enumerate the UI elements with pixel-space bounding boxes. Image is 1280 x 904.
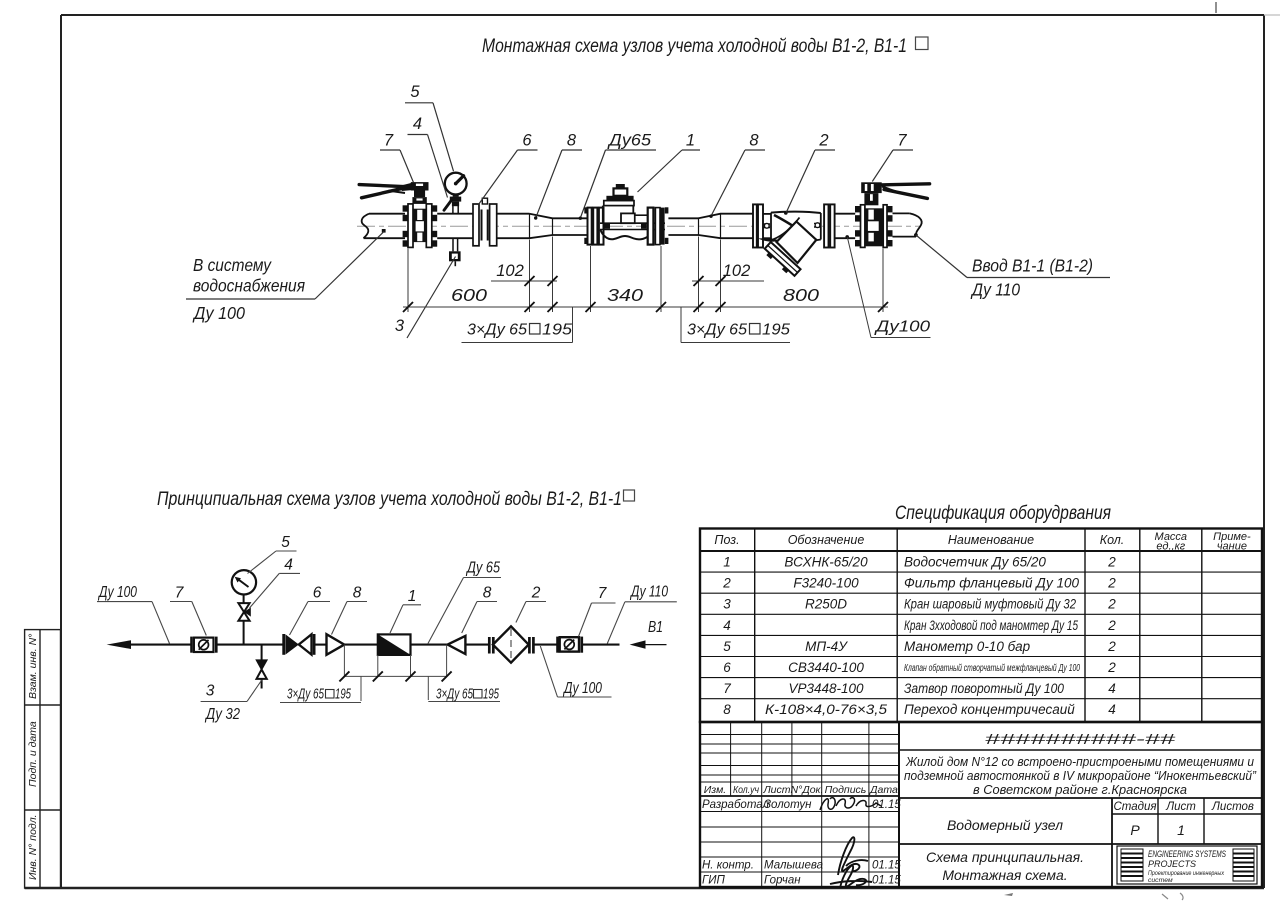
svg-text:2: 2 (1107, 576, 1116, 591)
svg-text:Лист: Лист (762, 784, 790, 796)
svg-text:Листов: Листов (1211, 801, 1254, 813)
svg-text:01.15: 01.15 (872, 860, 901, 872)
svg-text:5: 5 (410, 83, 420, 101)
svg-text:8: 8 (723, 702, 731, 717)
svg-text:Переход концентричесаий: Переход концентричесаий (904, 702, 1075, 717)
svg-text:в Советском районе г.Красноярс: в Советском районе г.Красноярска (973, 782, 1187, 797)
svg-text:1: 1 (1177, 822, 1185, 838)
svg-text:195: 195 (542, 322, 572, 339)
svg-text:Кран 3хходовой под маномтер Ду: Кран 3хходовой под маномтер Ду 15 (904, 618, 1078, 633)
svg-text:Подп. и дата: Подп. и дата (27, 721, 39, 787)
svg-text:Подпись: Подпись (825, 784, 867, 796)
svg-text:1: 1 (723, 555, 731, 570)
svg-text:6: 6 (723, 660, 731, 675)
svg-text:Н. контр.: Н. контр. (702, 860, 754, 872)
svg-text:Кол.: Кол. (1100, 533, 1125, 547)
svg-text:2: 2 (1107, 555, 1116, 570)
svg-text:3×Ду 65: 3×Ду 65 (687, 322, 747, 339)
svg-text:Малышева: Малышева (764, 860, 823, 872)
svg-text:Спецификация оборудрвания: Спецификация оборудрвания (895, 503, 1111, 524)
svg-text:3: 3 (395, 317, 405, 335)
svg-text:1: 1 (686, 132, 695, 150)
svg-text:Схема принципаильная.: Схема принципаильная. (926, 849, 1084, 865)
svg-text:800: 800 (783, 285, 819, 305)
svg-text:2: 2 (531, 585, 541, 602)
svg-text:4: 4 (413, 115, 422, 133)
svg-text:Принципиальная схема узлов уче: Принципиальная схема узлов учета холодно… (157, 489, 622, 510)
svg-text:Золотун: Золотун (764, 799, 812, 811)
svg-text:Водосчетчик Ду 65/20: Водосчетчик Ду 65/20 (904, 555, 1046, 570)
svg-text:195: 195 (762, 322, 790, 339)
svg-text:Изм.: Изм. (704, 784, 726, 796)
svg-text:R250D: R250D (805, 597, 847, 612)
svg-text:Горчан: Горчан (764, 875, 801, 887)
svg-text:Наименование: Наименование (948, 533, 1034, 547)
svg-text:В1: В1 (648, 619, 663, 636)
svg-text:Лист: Лист (1165, 801, 1196, 813)
svg-text:7: 7 (598, 585, 608, 602)
svg-text:подземной автостоянкой в IV ми: подземной автостоянкой в IV микрорайоне … (904, 768, 1257, 783)
svg-text:7: 7 (384, 132, 394, 150)
svg-text:Жилой дом N°12 со встроено-при: Жилой дом N°12 со встроено-пристроеными … (905, 754, 1254, 769)
svg-text:4: 4 (723, 618, 731, 633)
svg-text:2: 2 (1107, 660, 1116, 675)
svg-text:Ду 110: Ду 110 (970, 280, 1020, 300)
svg-text:8: 8 (353, 585, 362, 602)
svg-text:В систему: В систему (193, 255, 272, 275)
svg-text:2: 2 (722, 576, 731, 591)
svg-text:Дата: Дата (869, 784, 898, 796)
svg-text:Проектирование инженерных: Проектирование инженерных (1148, 870, 1224, 877)
svg-text:Ввод В1-1 (В1-2): Ввод В1-1 (В1-2) (972, 256, 1093, 276)
svg-text:Взам. инв. N°: Взам. инв. N° (27, 634, 39, 699)
svg-text:8: 8 (749, 132, 759, 150)
svg-text:Ду 32: Ду 32 (204, 706, 240, 723)
svg-text:чание: чание (1217, 541, 1247, 553)
svg-text:водоснабжения: водоснабжения (193, 276, 305, 296)
svg-text:2: 2 (1107, 639, 1116, 654)
svg-text:2: 2 (1107, 597, 1116, 612)
svg-text:2: 2 (818, 132, 828, 150)
svg-text:Водомерный узел: Водомерный узел (947, 817, 1063, 833)
svg-text:4: 4 (1108, 681, 1116, 696)
svg-text:7: 7 (723, 681, 731, 696)
svg-text:VР3448-100: VР3448-100 (788, 681, 864, 696)
svg-text:МП-4У: МП-4У (805, 639, 848, 654)
svg-text:3×Ду 65: 3×Ду 65 (436, 687, 474, 703)
svg-text:Монтажная схема.: Монтажная схема. (942, 867, 1067, 883)
svg-text:6: 6 (522, 132, 532, 150)
svg-text:систем: систем (1148, 877, 1173, 884)
svg-text:ВСХНК-65/20: ВСХНК-65/20 (784, 555, 868, 570)
svg-text:5: 5 (281, 534, 290, 551)
svg-text:6: 6 (313, 585, 322, 602)
svg-text:01.15: 01.15 (872, 799, 901, 811)
svg-text:2: 2 (1107, 618, 1116, 633)
svg-text:Ду 100: Ду 100 (562, 680, 602, 697)
svg-text:Стадия: Стадия (1113, 801, 1156, 813)
svg-text:Ду 110: Ду 110 (629, 584, 668, 601)
svg-text:Монтажная схема узлов учета хо: Монтажная схема узлов учета холодной вод… (482, 36, 907, 57)
svg-text:01.15: 01.15 (872, 875, 901, 887)
svg-text:Кол.уч: Кол.уч (733, 784, 759, 796)
svg-text:##########-##: ##########-## (985, 731, 1176, 748)
svg-text:Манометр 0-10 бар: Манометр 0-10 бар (904, 639, 1031, 654)
svg-text:PROJECTS: PROJECTS (1148, 859, 1196, 869)
svg-text:К-108×4,0-76×3,5: К-108×4,0-76×3,5 (765, 702, 888, 717)
svg-text:ед.,кг: ед.,кг (1156, 541, 1185, 553)
svg-text:7: 7 (175, 585, 185, 602)
svg-text:195: 195 (335, 687, 352, 703)
svg-text:102: 102 (723, 262, 751, 280)
svg-text:Клапан обратный створчатый меж: Клапан обратный створчатый межфланцевый … (904, 662, 1080, 674)
svg-text:8: 8 (483, 585, 492, 602)
svg-text:5: 5 (723, 639, 731, 654)
svg-text:СВ3440-100: СВ3440-100 (788, 660, 864, 675)
svg-text:600: 600 (451, 285, 487, 305)
svg-text:3×Ду 65: 3×Ду 65 (467, 322, 527, 339)
svg-text:Ду 65: Ду 65 (465, 560, 500, 577)
svg-text:Р: Р (1130, 822, 1140, 838)
svg-text:3×Ду 65: 3×Ду 65 (287, 687, 325, 703)
svg-text:Разработал: Разработал (702, 799, 770, 811)
svg-text:Ду65: Ду65 (607, 132, 652, 150)
svg-text:Поз.: Поз. (714, 533, 739, 547)
svg-text:1: 1 (408, 588, 417, 605)
svg-text:4: 4 (1108, 702, 1116, 717)
svg-text:4: 4 (284, 557, 293, 574)
svg-text:Ду 100: Ду 100 (97, 584, 137, 601)
svg-text:Ду100: Ду100 (874, 319, 931, 336)
svg-text:102: 102 (496, 262, 524, 280)
svg-text:Обозначение: Обозначение (788, 533, 865, 547)
svg-text:8: 8 (567, 132, 577, 150)
svg-text:195: 195 (483, 687, 500, 703)
svg-text:7: 7 (897, 132, 907, 150)
svg-text:Инв. N° подл.: Инв. N° подл. (27, 814, 39, 880)
svg-text:3: 3 (723, 597, 731, 612)
svg-text:Ду 100: Ду 100 (192, 303, 245, 323)
svg-text:Затвор поворотный Ду 100: Затвор поворотный Ду 100 (904, 681, 1064, 696)
svg-text:N°Док.: N°Док. (791, 784, 824, 796)
svg-text:Кран шаровый муфтовый Ду 32: Кран шаровый муфтовый Ду 32 (904, 597, 1076, 612)
svg-text:340: 340 (607, 285, 643, 305)
svg-text:3: 3 (206, 683, 215, 700)
svg-text:F3240-100: F3240-100 (793, 576, 859, 591)
svg-text:ENGINEERING SYSTEMS: ENGINEERING SYSTEMS (1148, 849, 1226, 859)
svg-text:ГИП: ГИП (702, 875, 725, 887)
svg-text:Фильтр фланцевый Ду 100: Фильтр фланцевый Ду 100 (904, 576, 1079, 591)
